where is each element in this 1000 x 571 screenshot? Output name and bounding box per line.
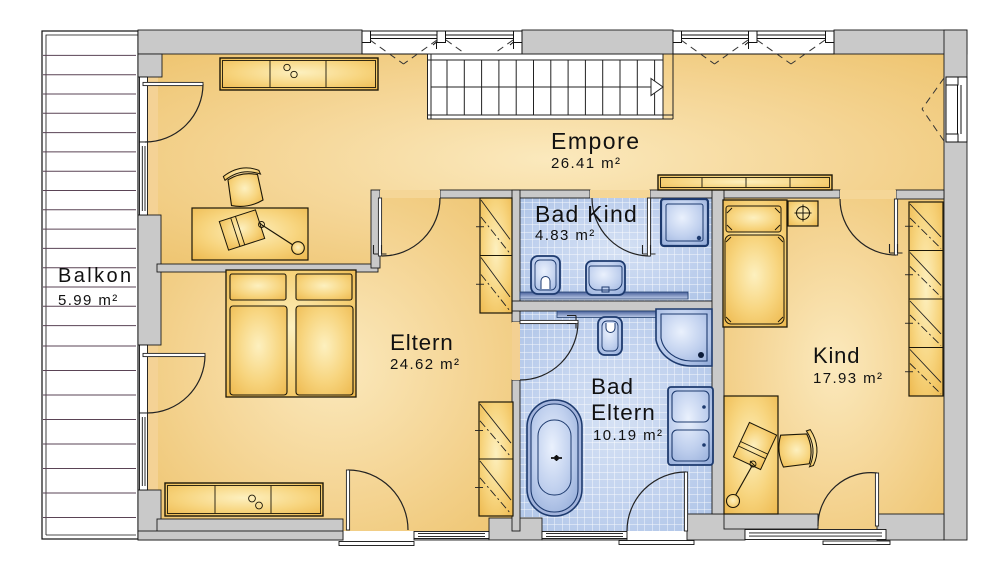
svg-text:10.19 m²: 10.19 m² — [593, 427, 663, 444]
svg-text:24.62 m²: 24.62 m² — [390, 356, 460, 373]
svg-text:Bad: Bad — [591, 374, 634, 399]
svg-text:Balkon: Balkon — [58, 265, 134, 287]
svg-text:Empore: Empore — [551, 128, 641, 154]
svg-text:26.41 m²: 26.41 m² — [551, 155, 621, 172]
svg-text:Kind: Kind — [813, 343, 860, 368]
svg-text:Eltern: Eltern — [390, 330, 454, 355]
svg-text:4.83 m²: 4.83 m² — [535, 227, 596, 244]
svg-text:5.99 m²: 5.99 m² — [58, 292, 119, 309]
svg-text:Bad Kind: Bad Kind — [535, 201, 638, 227]
svg-text:Eltern: Eltern — [591, 400, 656, 425]
svg-text:17.93 m²: 17.93 m² — [813, 370, 883, 387]
